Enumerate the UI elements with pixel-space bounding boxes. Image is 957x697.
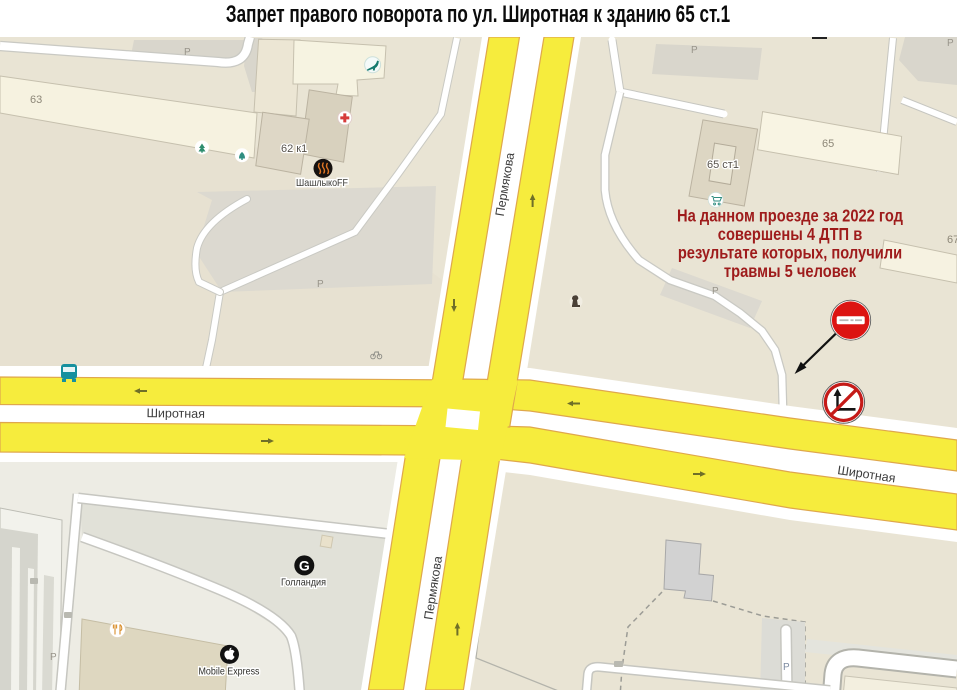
svg-text:На данном проезде за 2022 год: На данном проезде за 2022 год xyxy=(677,206,903,225)
svg-text:травмы 5 человек: травмы 5 человек xyxy=(724,262,857,281)
svg-text:совершены 4 ДТП в: совершены 4 ДТП в xyxy=(718,225,863,244)
svg-text:G: G xyxy=(299,558,310,574)
svg-text:P: P xyxy=(783,662,790,673)
svg-text:P: P xyxy=(691,45,698,56)
svg-text:Широтная: Широтная xyxy=(146,406,205,421)
svg-text:65: 65 xyxy=(822,138,834,150)
svg-text:Mobile Express: Mobile Express xyxy=(199,666,260,678)
svg-text:P: P xyxy=(947,38,954,49)
svg-text:P: P xyxy=(317,279,324,290)
svg-text:67: 67 xyxy=(947,234,957,246)
svg-text:P: P xyxy=(712,286,719,297)
svg-text:65 ст1: 65 ст1 xyxy=(707,159,739,171)
svg-text:P: P xyxy=(50,652,57,663)
svg-text:Голландия: Голландия xyxy=(281,577,326,589)
svg-text:P: P xyxy=(184,47,191,58)
svg-text:62 к1: 62 к1 xyxy=(281,143,307,155)
svg-text:результате которых, получили: результате которых, получили xyxy=(678,243,902,262)
svg-text:63: 63 xyxy=(30,94,42,106)
svg-text:ШашлыкоFF: ШашлыкоFF xyxy=(296,177,348,189)
